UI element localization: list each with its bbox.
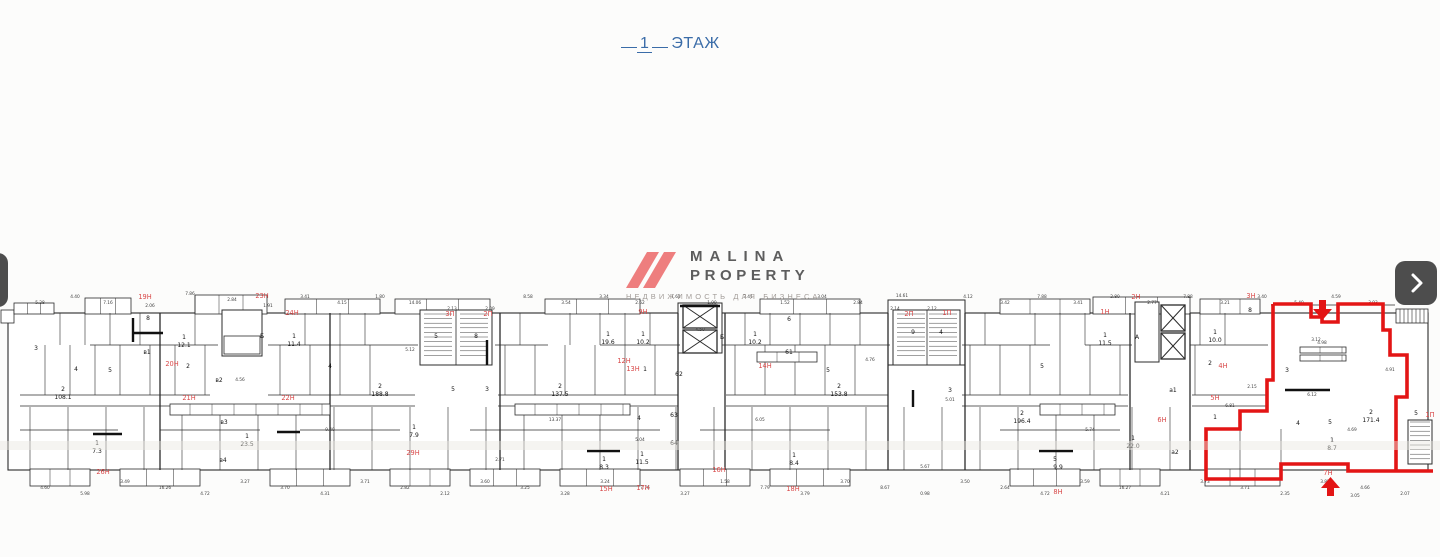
svg-text:4.66: 4.66 bbox=[1360, 485, 1370, 491]
svg-text:12Н: 12Н bbox=[617, 357, 630, 365]
svg-text:4.91: 4.91 bbox=[1385, 367, 1395, 373]
svg-text:63: 63 bbox=[670, 412, 678, 419]
svg-text:1Н: 1Н bbox=[1100, 308, 1109, 316]
svg-text:2.71: 2.71 bbox=[495, 457, 505, 463]
svg-text:21Н: 21Н bbox=[182, 394, 195, 402]
svg-text:4: 4 bbox=[637, 415, 641, 422]
svg-text:1П: 1П bbox=[942, 309, 951, 317]
svg-text:5Н: 5Н bbox=[1210, 394, 1219, 402]
svg-text:7.88: 7.88 bbox=[1037, 294, 1047, 300]
entrance-arrow-up bbox=[1327, 487, 1334, 496]
svg-text:2: 2 bbox=[186, 363, 190, 370]
svg-text:6.12: 6.12 bbox=[1307, 392, 1317, 398]
svg-text:5: 5 bbox=[434, 333, 438, 340]
svg-text:13.37: 13.37 bbox=[549, 417, 562, 423]
svg-text:в1: в1 bbox=[143, 349, 151, 356]
svg-text:3.34: 3.34 bbox=[599, 294, 609, 300]
svg-text:3.59: 3.59 bbox=[1080, 479, 1090, 485]
next-image-button[interactable] bbox=[1395, 261, 1437, 305]
svg-text:5: 5 bbox=[1053, 456, 1057, 463]
svg-text:16.26: 16.26 bbox=[159, 485, 172, 491]
svg-text:2.82: 2.82 bbox=[400, 485, 410, 491]
svg-text:2.14: 2.14 bbox=[890, 306, 900, 312]
svg-text:108.1: 108.1 bbox=[54, 394, 71, 401]
svg-text:4.72: 4.72 bbox=[1040, 491, 1050, 497]
svg-text:4: 4 bbox=[328, 363, 332, 370]
svg-text:1: 1 bbox=[1213, 414, 1217, 421]
svg-text:2.06: 2.06 bbox=[145, 303, 155, 309]
svg-text:1: 1 bbox=[792, 452, 796, 459]
svg-text:4: 4 bbox=[1296, 420, 1300, 427]
svg-text:17Н: 17Н bbox=[636, 484, 649, 492]
svg-text:2П: 2П bbox=[904, 310, 913, 318]
svg-text:9Н: 9Н bbox=[638, 308, 647, 316]
svg-text:2Н: 2Н bbox=[1131, 293, 1140, 301]
svg-text:в2: в2 bbox=[215, 377, 223, 384]
svg-text:5: 5 bbox=[1414, 410, 1418, 417]
prev-image-button[interactable] bbox=[0, 253, 8, 307]
svg-text:23Н: 23Н bbox=[255, 292, 268, 300]
logo-name-line1: MALINA bbox=[690, 248, 809, 267]
svg-text:8.58: 8.58 bbox=[523, 294, 533, 300]
svg-text:3.60: 3.60 bbox=[480, 479, 490, 485]
svg-text:2.12: 2.12 bbox=[440, 491, 450, 497]
svg-text:3: 3 bbox=[948, 387, 952, 394]
svg-text:19Н: 19Н bbox=[138, 293, 151, 301]
svg-text:а2: а2 bbox=[1171, 449, 1179, 456]
svg-text:8: 8 bbox=[1248, 307, 1252, 314]
svg-text:11.5: 11.5 bbox=[1098, 340, 1112, 347]
plan-walls bbox=[1, 295, 1432, 486]
svg-text:6.81: 6.81 bbox=[1225, 403, 1235, 409]
chevron-right-icon bbox=[1404, 271, 1428, 295]
svg-text:22Н: 22Н bbox=[281, 394, 294, 402]
listing-image-viewer: 1ЭТАЖ 5.284.407.162.067.862.841.913.414.… bbox=[0, 0, 1440, 557]
svg-text:8.67: 8.67 bbox=[880, 485, 890, 491]
svg-text:4.50: 4.50 bbox=[695, 327, 705, 333]
svg-text:7.9: 7.9 bbox=[409, 432, 419, 439]
svg-text:15Н: 15Н bbox=[599, 485, 612, 493]
svg-text:в3: в3 bbox=[220, 419, 228, 426]
svg-text:9.40: 9.40 bbox=[325, 427, 335, 433]
svg-text:3.79: 3.79 bbox=[800, 491, 810, 497]
svg-text:1: 1 bbox=[292, 333, 296, 340]
svg-text:2.35: 2.35 bbox=[1280, 491, 1290, 497]
svg-text:11.4: 11.4 bbox=[287, 341, 301, 348]
svg-text:8Н: 8Н bbox=[1053, 488, 1062, 496]
svg-text:5.67: 5.67 bbox=[920, 464, 930, 470]
svg-text:7Н: 7Н bbox=[1323, 469, 1332, 477]
svg-text:5: 5 bbox=[108, 367, 112, 374]
svg-text:3.40: 3.40 bbox=[1257, 294, 1267, 300]
svg-text:3.70: 3.70 bbox=[840, 479, 850, 485]
svg-text:2: 2 bbox=[1020, 410, 1024, 417]
svg-text:4.69: 4.69 bbox=[1347, 427, 1357, 433]
svg-text:11.5: 11.5 bbox=[635, 459, 649, 466]
svg-text:5.01: 5.01 bbox=[945, 397, 955, 403]
svg-text:1: 1 bbox=[602, 456, 606, 463]
svg-text:3.41: 3.41 bbox=[1073, 300, 1083, 306]
svg-text:2.12: 2.12 bbox=[927, 306, 937, 312]
svg-text:14Н: 14Н bbox=[758, 362, 771, 370]
svg-text:1: 1 bbox=[1213, 329, 1217, 336]
svg-text:в4: в4 bbox=[219, 457, 227, 464]
svg-text:2: 2 bbox=[378, 383, 382, 390]
svg-text:1: 1 bbox=[606, 331, 610, 338]
svg-text:а1: а1 bbox=[1169, 387, 1177, 394]
svg-text:137.5: 137.5 bbox=[551, 391, 568, 398]
svg-text:3.54: 3.54 bbox=[561, 300, 571, 306]
svg-text:24Н: 24Н bbox=[285, 309, 298, 317]
svg-text:4.31: 4.31 bbox=[320, 491, 330, 497]
malina-logo-icon bbox=[626, 246, 680, 288]
svg-text:4.56: 4.56 bbox=[235, 377, 245, 383]
svg-text:1: 1 bbox=[643, 366, 647, 373]
svg-text:7.16: 7.16 bbox=[103, 300, 113, 306]
svg-text:3: 3 bbox=[485, 386, 489, 393]
svg-text:16.27: 16.27 bbox=[1119, 485, 1132, 491]
svg-text:6.05: 6.05 bbox=[755, 417, 765, 423]
svg-text:5: 5 bbox=[1040, 363, 1044, 370]
svg-text:3.42: 3.42 bbox=[1000, 300, 1010, 306]
svg-text:3.05: 3.05 bbox=[1350, 493, 1360, 499]
svg-text:9: 9 bbox=[911, 329, 915, 336]
svg-text:2П: 2П bbox=[483, 310, 492, 318]
svg-text:8.4: 8.4 bbox=[789, 460, 799, 467]
svg-text:Б: Б bbox=[720, 334, 724, 341]
logo-name-line2: PROPERTY bbox=[690, 267, 809, 286]
svg-text:19.6: 19.6 bbox=[601, 339, 615, 346]
svg-text:26Н: 26Н bbox=[96, 468, 109, 476]
svg-text:3.27: 3.27 bbox=[240, 479, 250, 485]
svg-text:18Н: 18Н bbox=[786, 485, 799, 493]
svg-text:6Н: 6Н bbox=[1157, 416, 1166, 424]
svg-text:5.28: 5.28 bbox=[35, 300, 45, 306]
svg-text:3.71: 3.71 bbox=[1240, 485, 1250, 491]
svg-text:1: 1 bbox=[245, 433, 249, 440]
svg-text:8.3: 8.3 bbox=[599, 464, 609, 471]
svg-text:16Н: 16Н bbox=[712, 466, 725, 474]
svg-text:3: 3 bbox=[34, 345, 38, 352]
svg-text:4.76: 4.76 bbox=[865, 357, 875, 363]
svg-text:2: 2 bbox=[837, 383, 841, 390]
svg-text:3П: 3П bbox=[445, 310, 454, 318]
watermark-logo: MALINA PROPERTY НЕДВИЖИМОСТЬ ДЛЯ БИЗНЕСА bbox=[626, 246, 826, 304]
entrance-arrow-down bbox=[1319, 300, 1326, 309]
svg-text:1: 1 bbox=[641, 331, 645, 338]
svg-text:4.15: 4.15 bbox=[337, 300, 347, 306]
svg-text:1П: 1П bbox=[1425, 411, 1434, 419]
svg-text:0.98: 0.98 bbox=[920, 491, 930, 497]
scan-seam bbox=[0, 441, 1440, 450]
svg-text:1: 1 bbox=[182, 334, 186, 341]
svg-text:3.21: 3.21 bbox=[1220, 300, 1230, 306]
svg-text:3Н: 3Н bbox=[1246, 292, 1255, 300]
svg-text:5: 5 bbox=[451, 386, 455, 393]
svg-text:3.25: 3.25 bbox=[520, 485, 530, 491]
svg-text:12.1: 12.1 bbox=[177, 342, 191, 349]
svg-text:2.15: 2.15 bbox=[1247, 384, 1257, 390]
svg-text:188.8: 188.8 bbox=[371, 391, 388, 398]
svg-text:29Н: 29Н bbox=[406, 449, 419, 457]
svg-text:4.72: 4.72 bbox=[200, 491, 210, 497]
svg-text:5: 5 bbox=[1328, 419, 1332, 426]
svg-text:4.60: 4.60 bbox=[40, 485, 50, 491]
svg-text:2.07: 2.07 bbox=[1400, 491, 1410, 497]
svg-text:4.12: 4.12 bbox=[963, 294, 973, 300]
svg-text:4.98: 4.98 bbox=[1317, 340, 1327, 346]
svg-text:8: 8 bbox=[474, 333, 478, 340]
svg-text:10.2: 10.2 bbox=[748, 339, 762, 346]
svg-text:1: 1 bbox=[640, 451, 644, 458]
svg-text:62: 62 bbox=[675, 371, 683, 378]
svg-text:2: 2 bbox=[61, 386, 65, 393]
svg-text:2.80: 2.80 bbox=[1110, 294, 1120, 300]
svg-text:2: 2 bbox=[1208, 360, 1212, 367]
svg-text:2.64: 2.64 bbox=[1000, 485, 1010, 491]
svg-text:1: 1 bbox=[1103, 332, 1107, 339]
svg-text:3.50: 3.50 bbox=[960, 479, 970, 485]
svg-text:5.12: 5.12 bbox=[405, 347, 415, 353]
svg-text:2.84: 2.84 bbox=[227, 297, 237, 303]
svg-text:4.40: 4.40 bbox=[70, 294, 80, 300]
svg-text:196.4: 196.4 bbox=[1013, 418, 1030, 425]
svg-text:3.49: 3.49 bbox=[120, 479, 130, 485]
svg-text:9.9: 9.9 bbox=[1053, 464, 1063, 471]
svg-text:153.8: 153.8 bbox=[830, 391, 847, 398]
svg-text:4: 4 bbox=[939, 329, 943, 336]
svg-text:20Н: 20Н bbox=[165, 360, 178, 368]
svg-text:3.27: 3.27 bbox=[680, 491, 690, 497]
svg-text:2: 2 bbox=[1369, 409, 1373, 416]
svg-text:2.84: 2.84 bbox=[853, 300, 863, 306]
svg-text:3.28: 3.28 bbox=[560, 491, 570, 497]
svg-text:1: 1 bbox=[412, 424, 416, 431]
svg-text:1.91: 1.91 bbox=[263, 303, 273, 309]
svg-text:7.88: 7.88 bbox=[1183, 294, 1193, 300]
svg-text:4.21: 4.21 bbox=[1160, 491, 1170, 497]
svg-text:1.80: 1.80 bbox=[375, 294, 385, 300]
svg-text:61: 61 bbox=[785, 349, 793, 356]
svg-text:3.71: 3.71 bbox=[360, 479, 370, 485]
svg-text:13Н: 13Н bbox=[626, 365, 639, 373]
svg-text:3.70: 3.70 bbox=[280, 485, 290, 491]
svg-text:1.58: 1.58 bbox=[720, 479, 730, 485]
svg-text:10.2: 10.2 bbox=[636, 339, 650, 346]
svg-text:6: 6 bbox=[787, 316, 791, 323]
svg-text:2.77: 2.77 bbox=[1147, 300, 1157, 306]
svg-text:14.06: 14.06 bbox=[409, 300, 422, 306]
svg-text:171.4: 171.4 bbox=[1362, 417, 1379, 424]
svg-text:3: 3 bbox=[1285, 367, 1289, 374]
svg-text:8: 8 bbox=[146, 315, 150, 322]
svg-text:7.79: 7.79 bbox=[760, 485, 770, 491]
svg-text:4: 4 bbox=[74, 366, 78, 373]
svg-text:4.59: 4.59 bbox=[1331, 294, 1341, 300]
svg-text:4Н: 4Н bbox=[1218, 362, 1227, 370]
svg-text:10.0: 10.0 bbox=[1208, 337, 1222, 344]
svg-text:1: 1 bbox=[753, 331, 757, 338]
svg-text:3.41: 3.41 bbox=[300, 294, 310, 300]
svg-text:2: 2 bbox=[558, 383, 562, 390]
svg-text:14.61: 14.61 bbox=[896, 293, 909, 299]
svg-text:5.74: 5.74 bbox=[1085, 427, 1095, 433]
logo-subtitle: НЕДВИЖИМОСТЬ ДЛЯ БИЗНЕСА bbox=[626, 292, 826, 301]
svg-text:5: 5 bbox=[826, 367, 830, 374]
svg-text:Б: Б bbox=[260, 333, 264, 340]
svg-text:7.86: 7.86 bbox=[185, 291, 195, 297]
svg-text:5.98: 5.98 bbox=[80, 491, 90, 497]
